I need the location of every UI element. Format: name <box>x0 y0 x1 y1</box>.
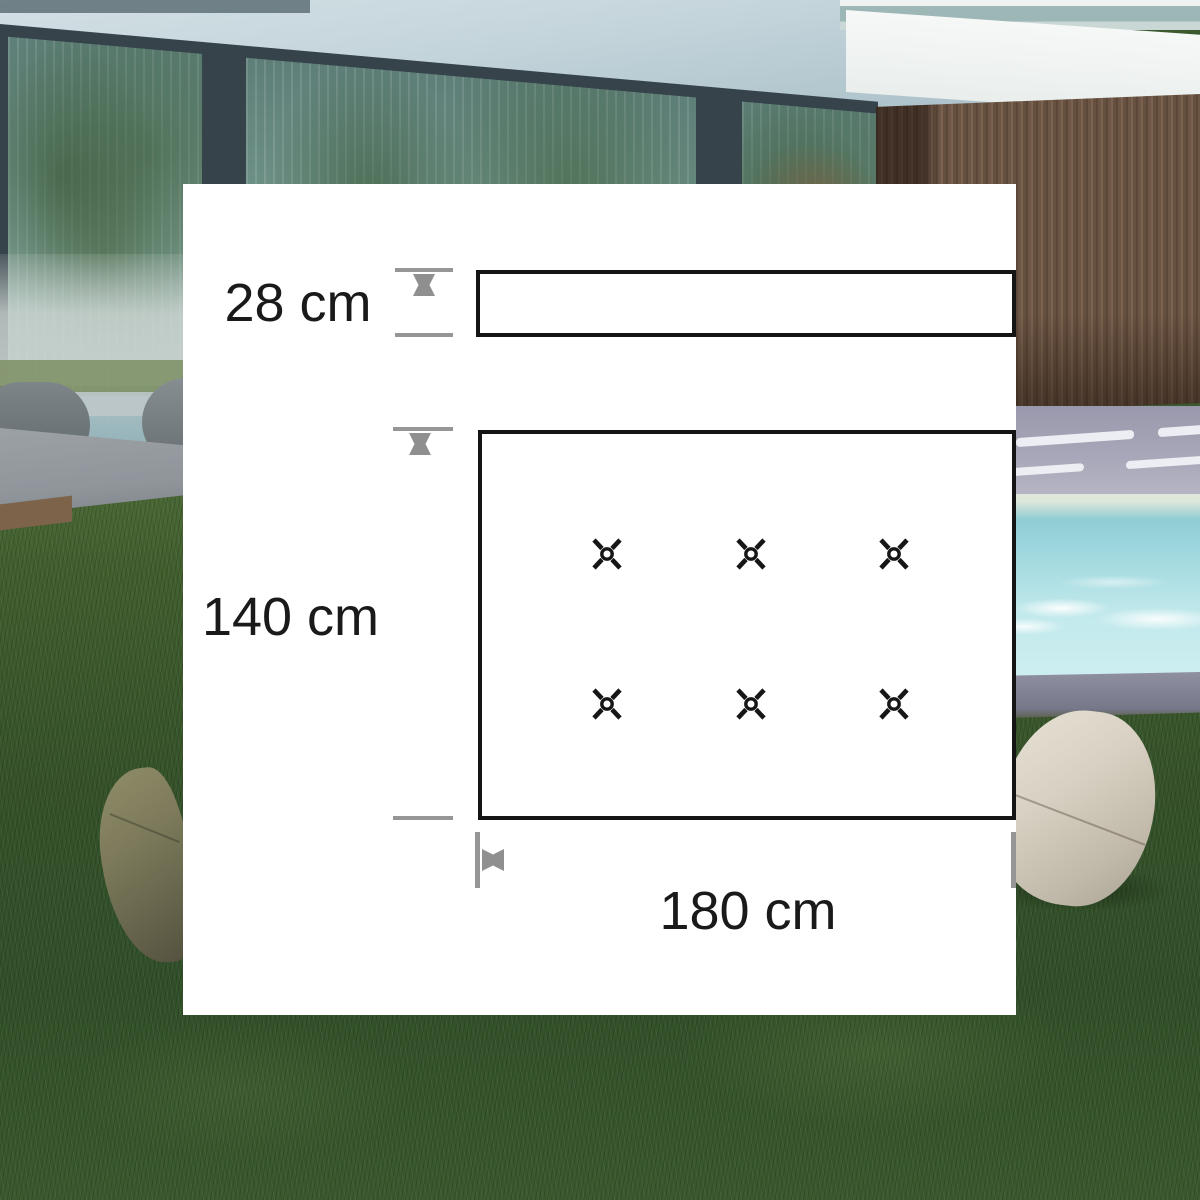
tuft-button-icon <box>876 686 912 722</box>
terrace-stripe <box>1158 424 1200 437</box>
backrest-outline-rect <box>476 270 1016 337</box>
pool-deck <box>1008 672 1200 718</box>
double-arrow-vertical-icon <box>407 433 433 814</box>
double-arrow-vertical-icon <box>411 274 437 331</box>
dimension-cap <box>395 268 453 272</box>
dimension-cap <box>475 832 480 888</box>
arrow-down-icon <box>409 433 431 455</box>
tuft-button-icon <box>589 536 625 572</box>
seat-height-label: 140 cm <box>183 588 398 646</box>
terrace-right <box>1008 406 1200 498</box>
seat-width-label: 180 cm <box>638 882 858 942</box>
dimension-cap <box>393 427 453 431</box>
seat-outline-rect <box>478 430 1016 820</box>
terrace-stripe <box>1016 430 1134 447</box>
backrest-height-label: 28 cm <box>198 274 398 332</box>
double-arrow-horizontal-icon <box>482 847 1009 873</box>
tuft-button-icon <box>733 686 769 722</box>
ceiling-shadow-strip <box>0 0 310 13</box>
dimension-cap <box>1011 832 1016 888</box>
dimension-cap <box>393 816 453 820</box>
dimension-cap <box>395 333 453 337</box>
tuft-button-icon <box>876 536 912 572</box>
tuft-button-icon <box>589 686 625 722</box>
tuft-button-icon <box>733 536 769 572</box>
terrace-stripe <box>1126 455 1200 469</box>
swimming-pool <box>1008 494 1200 678</box>
arrow-down-icon <box>413 274 435 296</box>
arrow-right-icon <box>482 849 504 871</box>
dimension-diagram-panel: 28 cm 140 cm 180 cm <box>183 184 1016 1015</box>
